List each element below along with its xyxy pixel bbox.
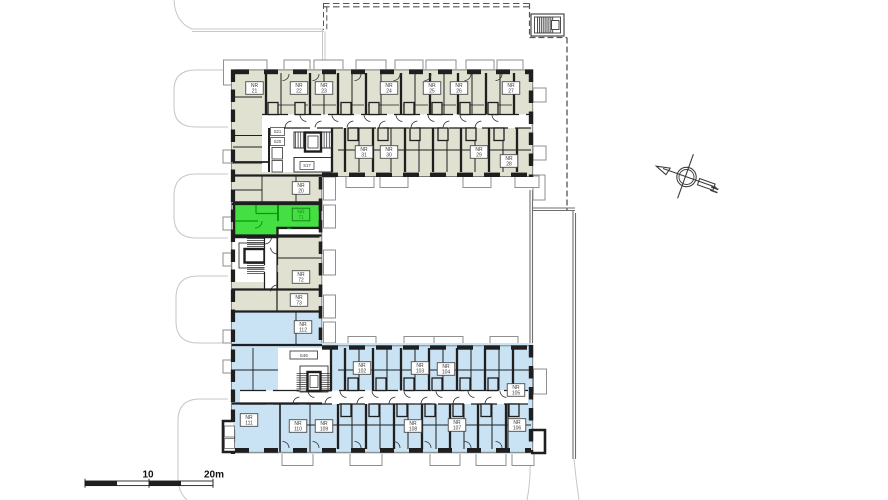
svg-text:111: 111 (245, 421, 253, 427)
svg-text:112: 112 (299, 328, 307, 334)
svg-text:21: 21 (252, 89, 258, 95)
svg-text:24: 24 (386, 89, 392, 95)
svg-text:S46: S46 (300, 353, 309, 358)
svg-text:103: 103 (416, 369, 425, 375)
svg-text:S20: S20 (274, 139, 282, 144)
svg-text:73: 73 (296, 301, 302, 307)
svg-text:31: 31 (361, 153, 367, 159)
svg-text:10: 10 (142, 470, 154, 481)
svg-text:25: 25 (429, 89, 435, 95)
svg-text:104: 104 (442, 370, 451, 376)
svg-text:22: 22 (296, 89, 302, 95)
svg-text:29: 29 (476, 153, 482, 159)
svg-text:23: 23 (321, 89, 327, 95)
svg-text:109: 109 (320, 427, 329, 433)
svg-text:S21: S21 (274, 129, 282, 134)
svg-text:71: 71 (298, 215, 304, 221)
svg-text:27: 27 (508, 89, 514, 95)
svg-text:105: 105 (512, 391, 521, 397)
svg-text:26: 26 (456, 89, 462, 95)
svg-text:102: 102 (358, 369, 367, 375)
svg-text:106: 106 (513, 426, 522, 432)
svg-text:28: 28 (506, 162, 512, 168)
svg-text:110: 110 (294, 427, 302, 433)
svg-text:72: 72 (298, 278, 304, 284)
svg-text:108: 108 (409, 427, 418, 433)
svg-text:20: 20 (298, 189, 304, 195)
svg-text:S17: S17 (303, 163, 311, 168)
svg-text:107: 107 (453, 426, 462, 432)
svg-text:30: 30 (386, 153, 392, 159)
svg-text:20m: 20m (204, 470, 224, 481)
